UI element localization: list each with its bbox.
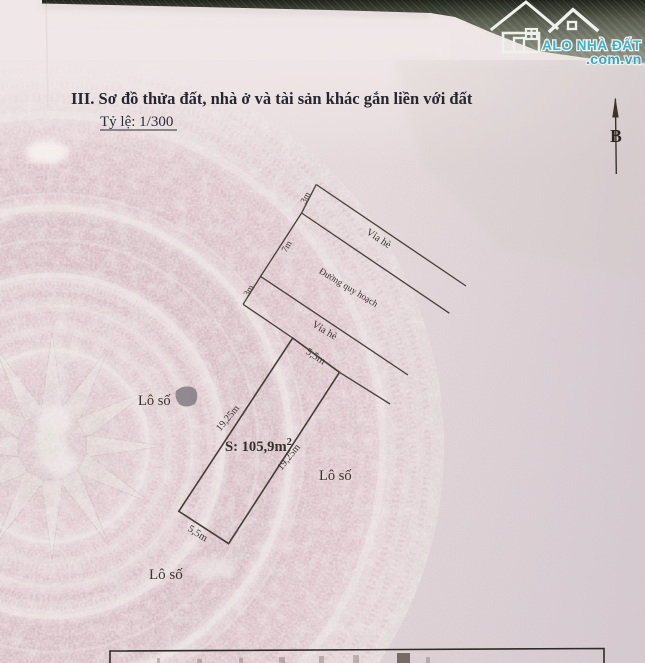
svg-text:.com.vn: .com.vn	[586, 51, 642, 67]
svg-text:III. Sơ đồ thửa đất, nhà ở và: III. Sơ đồ thửa đất, nhà ở và tài sản kh…	[71, 89, 473, 108]
svg-text:S: 105,9m2: S: 105,9m2	[225, 437, 292, 455]
svg-text:Lô số: Lô số	[319, 468, 352, 484]
svg-text:Tỷ lệ: 1/300: Tỷ lệ: 1/300	[100, 114, 173, 130]
svg-text:Lô số: Lô số	[138, 393, 171, 409]
svg-text:Lô số: Lô số	[149, 567, 183, 583]
svg-text:B: B	[610, 126, 622, 146]
